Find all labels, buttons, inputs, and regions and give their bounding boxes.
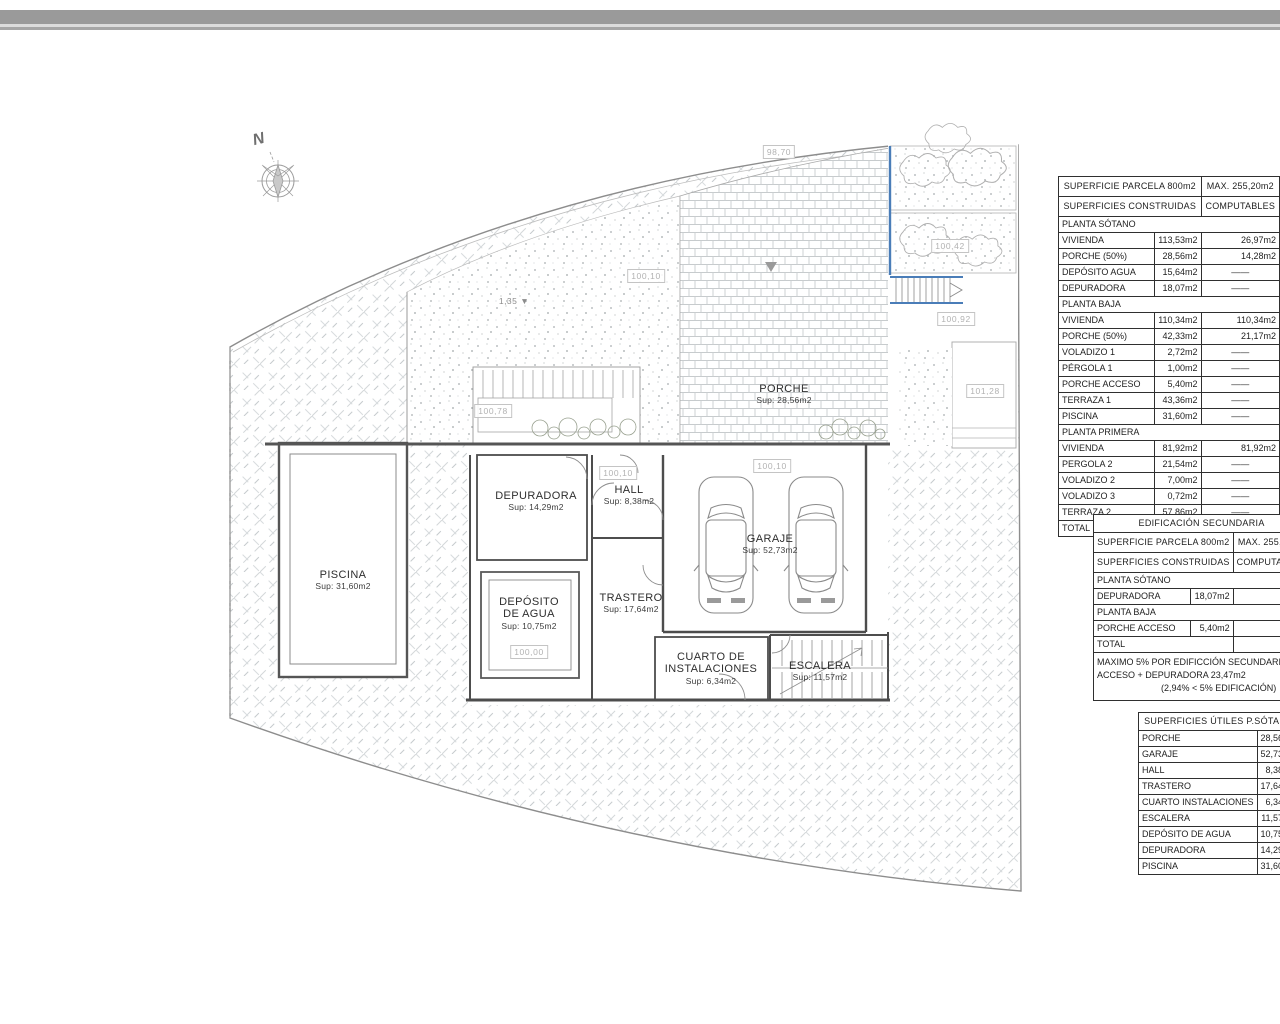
section-label: PLANTA SÓTANO (1094, 573, 1280, 589)
row-value: 14,29m2 (1257, 843, 1280, 859)
row-label: VIVIENDA (1059, 313, 1155, 329)
row-computable: —— (1201, 345, 1279, 361)
row-built: 113,53m2 (1155, 233, 1201, 249)
table-header-row: SUPERFICIES CONSTRUIDASCOMPUTABLES (1094, 553, 1280, 573)
row-built: 7,00m2 (1155, 473, 1201, 489)
table-header-row: SUPERFICIES CONSTRUIDASCOMPUTABLES (1059, 197, 1280, 217)
table-row: DEPURADORA18,07m2—— (1059, 281, 1280, 297)
row-computable (1233, 621, 1280, 637)
note-line: (2,94% < 5% EDIFICACIÓN) (1097, 682, 1280, 695)
header-label: SUPERFICIE PARCELA 800m2 (1094, 533, 1234, 553)
surface-table-secondary: EDIFICACIÓN SECUNDARIASUPERFICIE PARCELA… (1093, 514, 1280, 701)
table-title: EDIFICACIÓN SECUNDARIA (1094, 515, 1280, 533)
table-row: DEPÓSITO DE AGUA10,75m2 (1139, 827, 1280, 843)
row-label: HALL (1139, 763, 1258, 779)
table-row: PORCHE ACCESO5,40m2—— (1059, 377, 1280, 393)
row-built: 43,36m2 (1155, 393, 1201, 409)
row-value: 52,73m2 (1257, 747, 1280, 763)
table-title: SUPERFICIES ÚTILES P.SÓTANO (1139, 713, 1280, 731)
table-title-row: EDIFICACIÓN SECUNDARIA (1094, 515, 1280, 533)
row-label: DEPÓSITO AGUA (1059, 265, 1155, 281)
row-value: 11,57m2 (1257, 811, 1280, 827)
header-label: SUPERFICIES CONSTRUIDAS (1094, 553, 1234, 573)
row-computable: 26,97m2 (1201, 233, 1279, 249)
row-label: VOLADIZO 3 (1059, 489, 1155, 505)
section-label: PLANTA BAJA (1094, 605, 1280, 621)
row-label: DEPÓSITO DE AGUA (1139, 827, 1258, 843)
table-row: DEPURADORA14,29m2 (1139, 843, 1280, 859)
table-row: PLANTA SÓTANO (1094, 573, 1280, 589)
table-row: TERRAZA 143,36m2—— (1059, 393, 1280, 409)
table-row: PORCHE (50%)28,56m214,28m2 (1059, 249, 1280, 265)
table-row: PORCHE28,56m2 (1139, 731, 1280, 747)
floor-plan-page: { "plan": { "north_label": "N", "slope_m… (0, 0, 1280, 1024)
table-header-row: SUPERFICIE PARCELA 800m2MAX. 255,20m2 (1094, 533, 1280, 553)
note-line: MAXIMO 5% POR EDIFICCIÓN SECUNDARIA (1097, 656, 1280, 669)
row-built: 110,34m2 (1155, 313, 1201, 329)
row-label: DEPURADORA (1139, 843, 1258, 859)
row-built: 15,64m2 (1155, 265, 1201, 281)
table-row: PÉRGOLA 11,00m2—— (1059, 361, 1280, 377)
table-row: PISCINA31,60m2 (1139, 859, 1280, 875)
table-row: VIVIENDA113,53m226,97m2 (1059, 233, 1280, 249)
row-label: PERGOLA 2 (1059, 457, 1155, 473)
row-built: 0,72m2 (1155, 489, 1201, 505)
row-built: 42,33m2 (1155, 329, 1201, 345)
header-value: MAX. 255,20m2 (1233, 533, 1280, 553)
table-row: TOTAL (1094, 637, 1280, 653)
row-label: PORCHE (1139, 731, 1258, 747)
table-row: PORCHE ACCESO5,40m2 (1094, 621, 1280, 637)
row-computable: —— (1201, 361, 1279, 377)
row-built: 2,72m2 (1155, 345, 1201, 361)
note-line: ACCESO + DEPURADORA 23,47m2 (1097, 669, 1280, 682)
row-label: TERRAZA 1 (1059, 393, 1155, 409)
table-note-row: MAXIMO 5% POR EDIFICCIÓN SECUNDARIAACCES… (1094, 653, 1280, 701)
row-computable: 14,28m2 (1201, 249, 1279, 265)
surface-table-main: SUPERFICIE PARCELA 800m2MAX. 255,20m2SUP… (1058, 176, 1280, 537)
row-value: 31,60m2 (1257, 859, 1280, 875)
header-value: COMPUTABLES (1201, 197, 1279, 217)
row-built: 81,92m2 (1155, 441, 1201, 457)
row-label: VIVIENDA (1059, 441, 1155, 457)
row-label: TRASTERO (1139, 779, 1258, 795)
row-value: 8,38m2 (1257, 763, 1280, 779)
row-label: CUARTO INSTALACIONES (1139, 795, 1258, 811)
row-computable: —— (1201, 265, 1279, 281)
header-value: COMPUTABLES (1233, 553, 1280, 573)
total-label: TOTAL (1094, 637, 1234, 653)
table-row: VOLADIZO 30,72m2—— (1059, 489, 1280, 505)
row-label: PORCHE ACCESO (1094, 621, 1191, 637)
header-label: SUPERFICIES CONSTRUIDAS (1059, 197, 1202, 217)
table-row: DEPURADORA18,07m2 (1094, 589, 1280, 605)
table-row: HALL8,38m2 (1139, 763, 1280, 779)
row-label: PORCHE ACCESO (1059, 377, 1155, 393)
table-row: DEPÓSITO AGUA15,64m2—— (1059, 265, 1280, 281)
table-row: CUARTO INSTALACIONES6,34m2 (1139, 795, 1280, 811)
row-label: PORCHE (50%) (1059, 249, 1155, 265)
row-computable: 21,17m2 (1201, 329, 1279, 345)
row-computable: —— (1201, 409, 1279, 425)
row-value: 17,64m2 (1257, 779, 1280, 795)
row-label: PÉRGOLA 1 (1059, 361, 1155, 377)
row-built: 21,54m2 (1155, 457, 1201, 473)
north-compass-icon (257, 152, 299, 202)
table-row: PLANTA BAJA (1094, 605, 1280, 621)
section-label: PLANTA PRIMERA (1059, 425, 1280, 441)
row-computable (1233, 589, 1280, 605)
section-label: PLANTA BAJA (1059, 297, 1280, 313)
table-row: TRASTERO17,64m2 (1139, 779, 1280, 795)
table-header-row: SUPERFICIE PARCELA 800m2MAX. 255,20m2 (1059, 177, 1280, 197)
row-label: GARAJE (1139, 747, 1258, 763)
row-built: 18,07m2 (1190, 589, 1233, 605)
row-label: VIVIENDA (1059, 233, 1155, 249)
row-label: DEPURADORA (1059, 281, 1155, 297)
row-label: VOLADIZO 1 (1059, 345, 1155, 361)
row-label: DEPURADORA (1094, 589, 1191, 605)
row-built: 18,07m2 (1155, 281, 1201, 297)
row-built: 1,00m2 (1155, 361, 1201, 377)
table-row: VIVIENDA110,34m2110,34m2 (1059, 313, 1280, 329)
table-row: PERGOLA 221,54m2—— (1059, 457, 1280, 473)
section-label: PLANTA SÓTANO (1059, 217, 1280, 233)
row-computable: —— (1201, 281, 1279, 297)
total-value (1233, 637, 1280, 653)
table-row: PISCINA31,60m2—— (1059, 409, 1280, 425)
table-row: VIVIENDA81,92m281,92m2 (1059, 441, 1280, 457)
row-label: PISCINA (1059, 409, 1155, 425)
row-built: 28,56m2 (1155, 249, 1201, 265)
row-built: 5,40m2 (1190, 621, 1233, 637)
row-built: 31,60m2 (1155, 409, 1201, 425)
header-label: SUPERFICIE PARCELA 800m2 (1059, 177, 1202, 197)
row-label: PORCHE (50%) (1059, 329, 1155, 345)
row-label: PISCINA (1139, 859, 1258, 875)
table-row: VOLADIZO 12,72m2—— (1059, 345, 1280, 361)
table-row: VOLADIZO 27,00m2—— (1059, 473, 1280, 489)
table-row: GARAJE52,73m2 (1139, 747, 1280, 763)
surface-table-useful: SUPERFICIES ÚTILES P.SÓTANOPORCHE28,56m2… (1138, 712, 1280, 875)
row-computable: 81,92m2 (1201, 441, 1279, 457)
table-row: PLANTA PRIMERA (1059, 425, 1280, 441)
row-label: ESCALERA (1139, 811, 1258, 827)
row-computable: —— (1201, 473, 1279, 489)
row-computable: —— (1201, 489, 1279, 505)
table-row: PLANTA BAJA (1059, 297, 1280, 313)
header-value: MAX. 255,20m2 (1201, 177, 1279, 197)
row-built: 5,40m2 (1155, 377, 1201, 393)
row-value: 10,75m2 (1257, 827, 1280, 843)
row-value: 28,56m2 (1257, 731, 1280, 747)
row-computable: —— (1201, 377, 1279, 393)
row-label: VOLADIZO 2 (1059, 473, 1155, 489)
row-computable: —— (1201, 457, 1279, 473)
table-row: PORCHE (50%)42,33m221,17m2 (1059, 329, 1280, 345)
row-computable: 110,34m2 (1201, 313, 1279, 329)
table-row: PLANTA SÓTANO (1059, 217, 1280, 233)
row-value: 6,34m2 (1257, 795, 1280, 811)
table-title-row: SUPERFICIES ÚTILES P.SÓTANO (1139, 713, 1280, 731)
table-notes: MAXIMO 5% POR EDIFICCIÓN SECUNDARIAACCES… (1094, 653, 1280, 701)
row-computable: —— (1201, 393, 1279, 409)
table-row: ESCALERA11,57m2 (1139, 811, 1280, 827)
